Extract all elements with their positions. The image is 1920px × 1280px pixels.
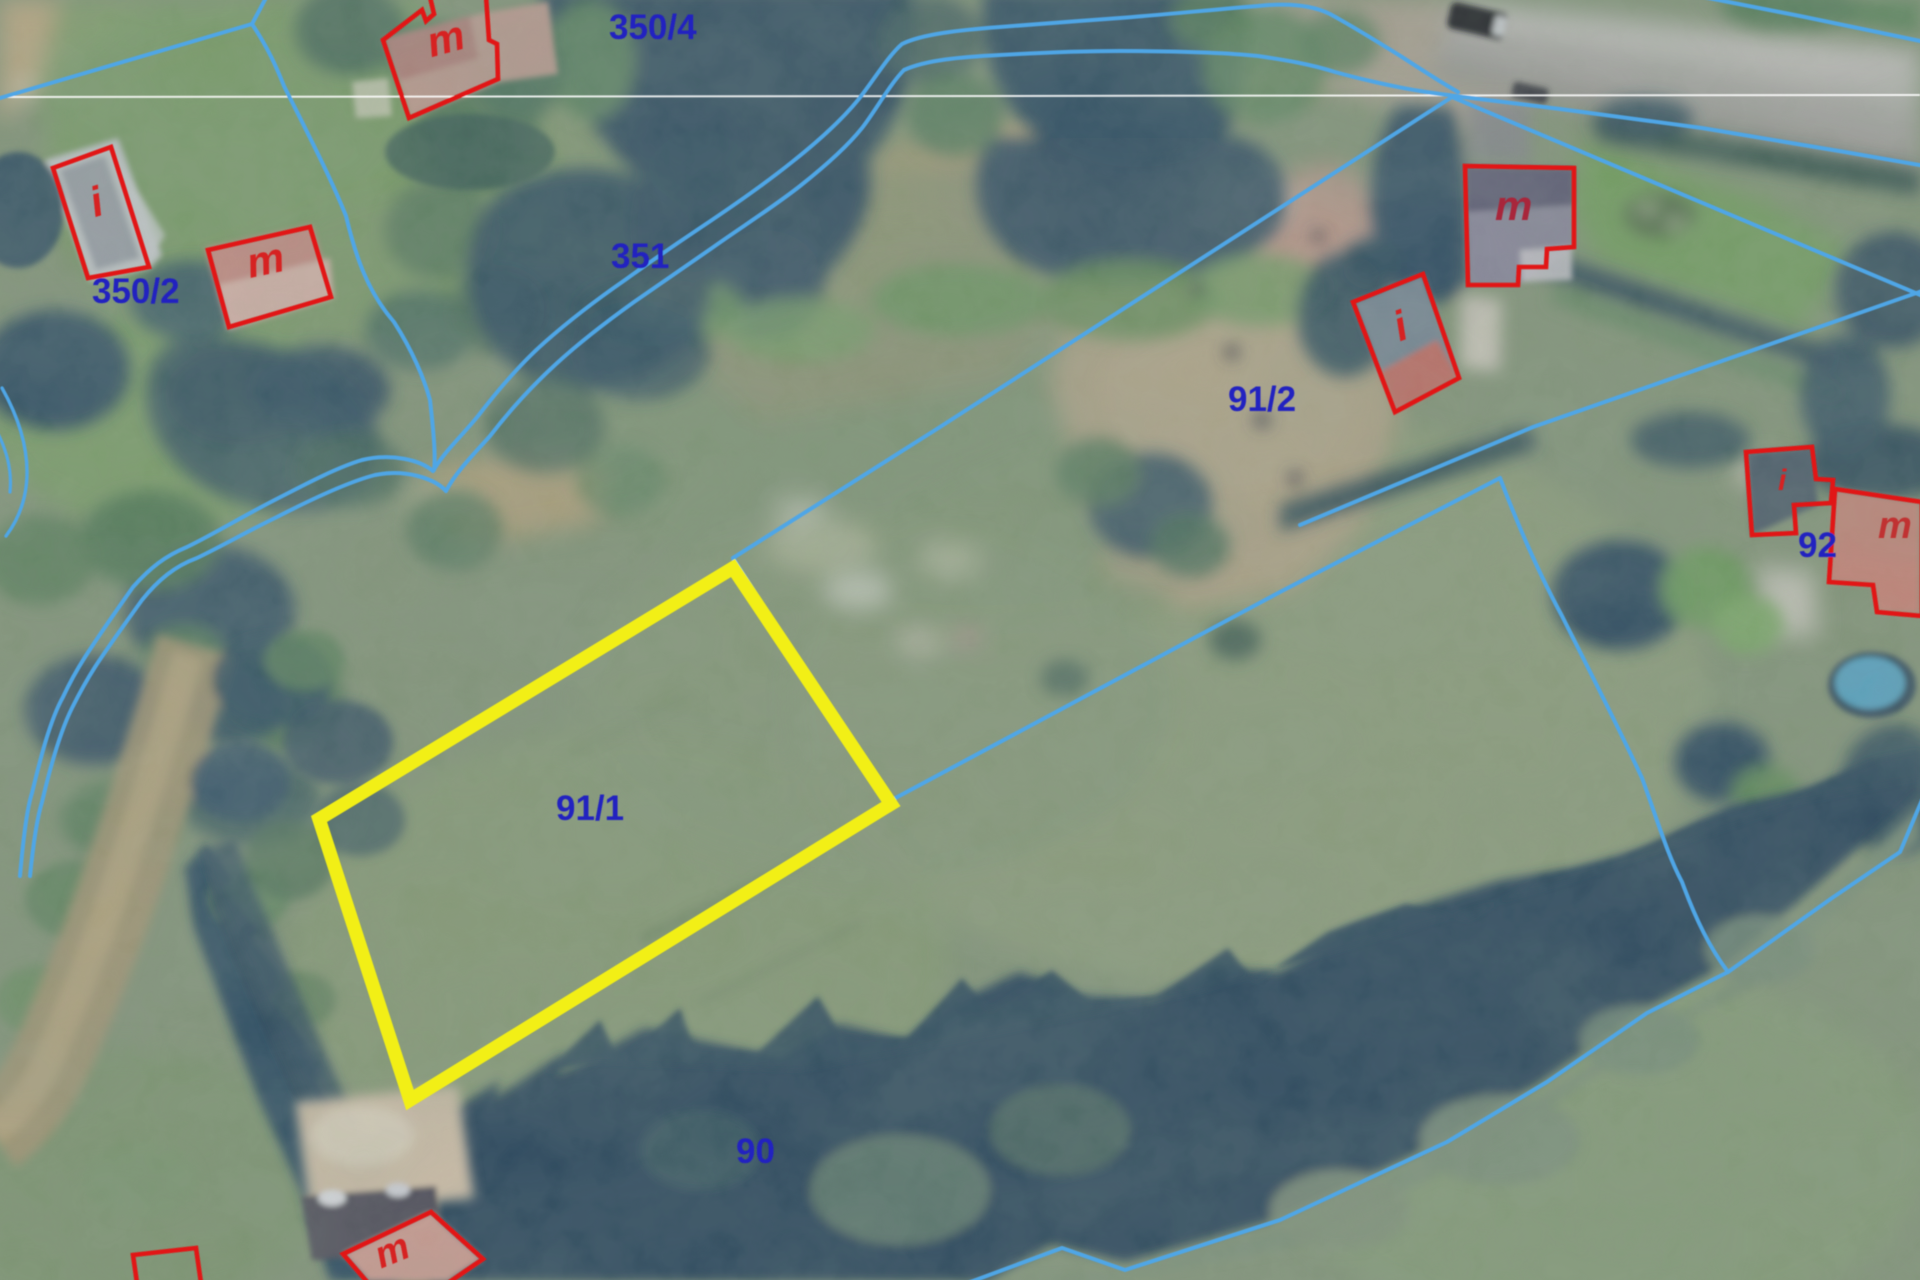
svg-text:m: m xyxy=(1495,182,1532,229)
svg-text:92: 92 xyxy=(1798,526,1837,565)
svg-text:351: 351 xyxy=(611,237,669,276)
svg-text:90: 90 xyxy=(736,1132,775,1171)
svg-text:350/4: 350/4 xyxy=(609,8,697,47)
svg-text:91/2: 91/2 xyxy=(1228,380,1296,419)
svg-text:91/1: 91/1 xyxy=(556,789,624,828)
svg-text:350/2: 350/2 xyxy=(92,272,180,311)
svg-text:m: m xyxy=(1878,505,1912,547)
svg-text:i: i xyxy=(1778,464,1787,497)
